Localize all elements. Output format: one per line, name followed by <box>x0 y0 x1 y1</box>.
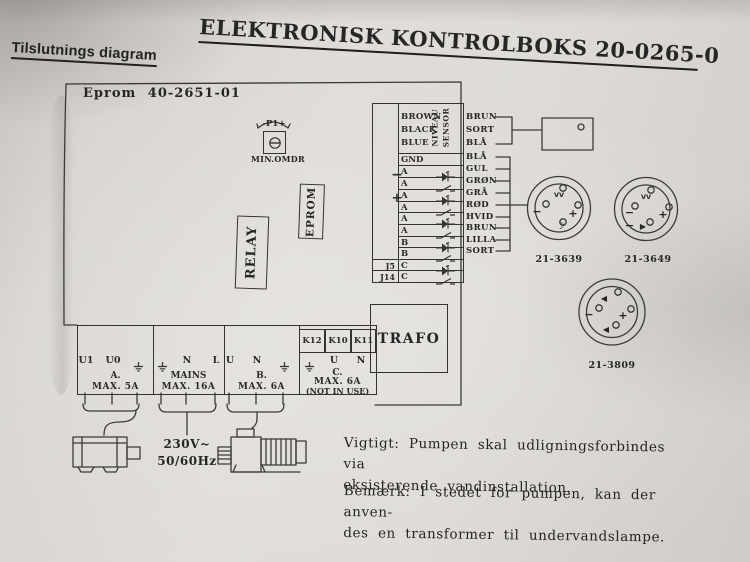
sensor-probe-outline <box>542 118 593 150</box>
terminal-u: U <box>324 355 344 366</box>
trimmer-label: -P1+ <box>255 119 293 129</box>
k-box-baseline <box>299 352 376 353</box>
scanned-page: { "page": { "title": "ELEKTRONISK KONTRO… <box>0 0 750 562</box>
section-b-wiring <box>227 393 284 428</box>
moon-symbol: ☽ <box>553 221 567 232</box>
io-row: C <box>398 270 463 283</box>
input-wire-blue: BLUE <box>401 138 429 148</box>
row-pin: A <box>401 214 408 224</box>
wire-label: GUL <box>466 164 512 174</box>
minus-symbol: − <box>531 205 543 218</box>
eprom-version-label: Eprom 40-2651-01 <box>83 86 241 101</box>
triangle-symbol: ◀ <box>597 294 611 303</box>
eprom-chip-label: EPROM <box>305 186 319 237</box>
terminal-n: N <box>351 355 371 366</box>
terminal-strip: K12 K10 K11 U1 U0 N L U N U N A. MAX. 5A… <box>77 325 377 395</box>
row-pin: C <box>401 272 408 282</box>
wire-label: LILLA <box>466 235 512 245</box>
wire-label: SORT <box>466 125 512 135</box>
section-a-wiring <box>83 393 139 435</box>
eprom-component: EPROM <box>298 184 325 240</box>
section-a-rating: MAX. 5A <box>78 382 153 392</box>
wire-label: SORT <box>466 246 512 256</box>
wire-label: GRÅ <box>466 188 512 198</box>
sensor-probe-hole <box>578 124 584 130</box>
section-a-name: A. <box>78 371 153 381</box>
pump-illustration <box>218 429 306 472</box>
remark-note: Bemærk: I stedet for pumpen, kan der anv… <box>343 481 674 549</box>
lamp-symbol: VV <box>637 193 655 201</box>
connector-id: 21-3639 <box>529 254 589 265</box>
relay-label: RELAY <box>244 225 261 279</box>
connector-id: 21-3809 <box>582 360 642 371</box>
row-pin: A <box>401 226 408 236</box>
page-subtitle: Tilslutnings diagram <box>11 40 157 67</box>
note-line: Bemærk: I stedet for pumpen, kan der anv… <box>343 481 674 528</box>
wire-label: BRUN <box>466 112 512 122</box>
plus-sign: + <box>389 191 405 206</box>
trimmer-caption: MIN.OMDR <box>251 154 303 164</box>
lamp-symbol: VV <box>550 191 568 199</box>
row-pin: B <box>401 249 408 259</box>
wire-label: BRUN <box>466 223 512 233</box>
mains-voltage: 230V~ <box>147 437 227 451</box>
plus-symbol: + <box>567 207 579 220</box>
gnd-label: GND <box>401 155 423 165</box>
plus-symbol: + <box>657 208 669 221</box>
relay-k11: K11 <box>351 329 376 352</box>
page-title: ELEKTRONISK KONTROLBOKS 20-0265-0 <box>198 14 699 71</box>
screw-head-icon <box>268 136 282 150</box>
mains-rating: MAX. 16A <box>153 382 224 392</box>
sensor-vertical-label: SENSOR <box>442 108 451 148</box>
switch-icon <box>436 272 456 291</box>
section-b-rating: MAX. 6A <box>224 382 299 392</box>
minus-sign: − <box>389 167 405 183</box>
trafo-label: TRAFO <box>378 331 441 347</box>
terminal-n: N <box>177 355 197 366</box>
wire-label: BLÅ <box>466 152 512 162</box>
section-b-name: B. <box>224 371 299 381</box>
terminal-u1: U1 <box>76 355 96 366</box>
terminal-u: U <box>220 355 240 366</box>
wire-label: HVID <box>466 212 512 222</box>
mains-wiring <box>159 393 216 435</box>
wire-label: RØD <box>466 200 512 210</box>
not-in-use-note: (NOT IN USE) <box>299 386 376 396</box>
trafo-component: TRAFO <box>370 304 448 373</box>
terminal-n: N <box>247 355 267 366</box>
note-line: des en transformer til undervandslampe. <box>343 523 673 549</box>
page-warp-shadow <box>48 95 74 395</box>
io-terminal-block: BROWN BLACK BLUE NIVEAU SENSOR GND A A A… <box>372 103 464 283</box>
triangle-symbol: ◀ <box>599 325 613 334</box>
relay-k12: K12 <box>299 329 325 352</box>
minus-symbol: − <box>583 308 595 321</box>
plus-symbol: + <box>617 309 629 322</box>
triangle-symbol: ▶ <box>636 222 650 231</box>
mains-name: MAINS <box>153 371 224 381</box>
niveau-vertical-label: NIVEAU <box>431 108 440 148</box>
connector-id: 21-3649 <box>618 254 678 265</box>
terminal-u0: U0 <box>103 355 123 366</box>
wire-label: GRØN <box>466 176 512 186</box>
relay-k10: K10 <box>325 329 351 352</box>
relay-component: RELAY <box>235 215 270 289</box>
trimmer-p1 <box>263 131 286 154</box>
motor-illustration <box>73 437 140 472</box>
wire-label: BLÅ <box>466 138 512 148</box>
jumper-j14-cell: J14 <box>373 270 398 282</box>
jumper-label: J14 <box>380 272 395 282</box>
note-line: Vigtigt: Pumpen skal udligningsforbindes… <box>343 433 674 480</box>
mains-frequency: 50/60Hz <box>147 454 227 468</box>
